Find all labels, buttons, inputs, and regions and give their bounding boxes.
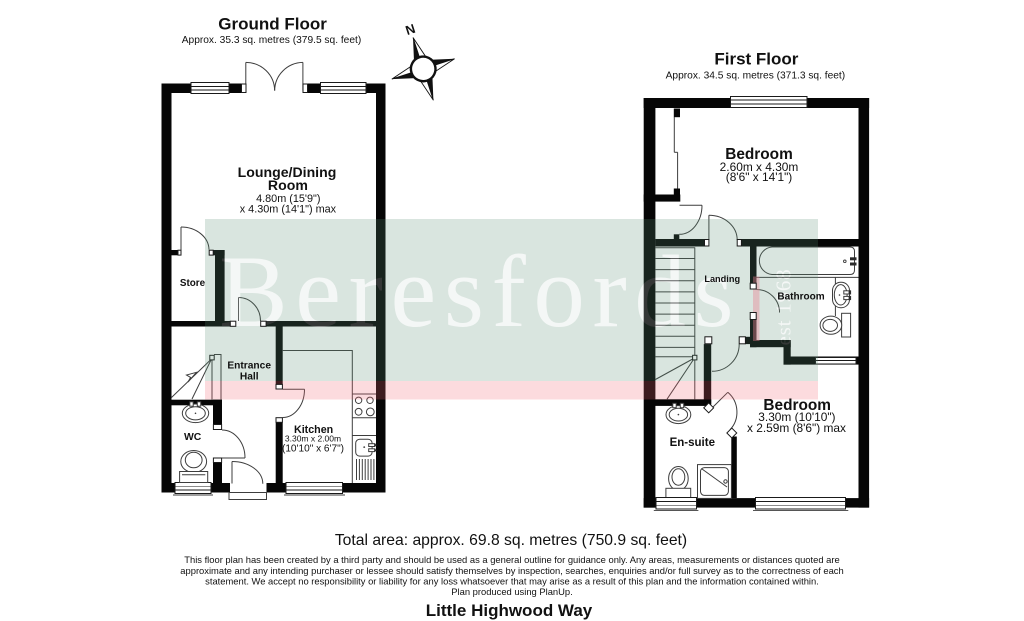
svg-text:Bathroom: Bathroom bbox=[777, 292, 824, 303]
svg-text:approximate and any intending: approximate and any intending purchaser … bbox=[180, 565, 843, 576]
svg-text:(10'10" x 6'7"): (10'10" x 6'7") bbox=[282, 444, 344, 455]
svg-text:x 4.30m (14'1") max: x 4.30m (14'1") max bbox=[240, 204, 337, 216]
svg-text:En-suite: En-suite bbox=[670, 437, 715, 449]
svg-text:This floor plan has been creat: This floor plan has been created by a th… bbox=[184, 554, 839, 565]
svg-text:x 2.59m (8'6") max: x 2.59m (8'6") max bbox=[747, 421, 846, 435]
svg-text:Entrance: Entrance bbox=[227, 360, 271, 371]
svg-text:3.30m x 2.00m: 3.30m x 2.00m bbox=[285, 434, 341, 444]
svg-text:(8'6" x 14'1"): (8'6" x 14'1") bbox=[726, 170, 793, 184]
svg-text:Total area: approx. 69.8 sq. m: Total area: approx. 69.8 sq. metres (750… bbox=[335, 532, 687, 549]
svg-text:Plan produced using PlanUp.: Plan produced using PlanUp. bbox=[451, 586, 572, 597]
svg-text:Beresfords: Beresfords bbox=[219, 235, 741, 349]
svg-text:Approx. 35.3 sq. metres (379.5: Approx. 35.3 sq. metres (379.5 sq. feet) bbox=[182, 35, 362, 46]
svg-text:WC: WC bbox=[184, 432, 202, 443]
svg-text:Landing: Landing bbox=[704, 274, 740, 284]
svg-text:Ground Floor: Ground Floor bbox=[218, 15, 327, 34]
svg-text:Room: Room bbox=[268, 177, 308, 193]
svg-text:statement. We accept no respon: statement. We accept no responsibility o… bbox=[205, 576, 819, 587]
svg-text:Little Highwood Way: Little Highwood Way bbox=[426, 601, 593, 620]
svg-text:Hall: Hall bbox=[240, 371, 259, 382]
svg-text:Store: Store bbox=[180, 278, 206, 289]
svg-text:Approx. 34.5 sq. metres (371.3: Approx. 34.5 sq. metres (371.3 sq. feet) bbox=[666, 71, 846, 82]
svg-text:First Floor: First Floor bbox=[714, 50, 798, 69]
svg-text:est 1968: est 1968 bbox=[772, 269, 796, 346]
